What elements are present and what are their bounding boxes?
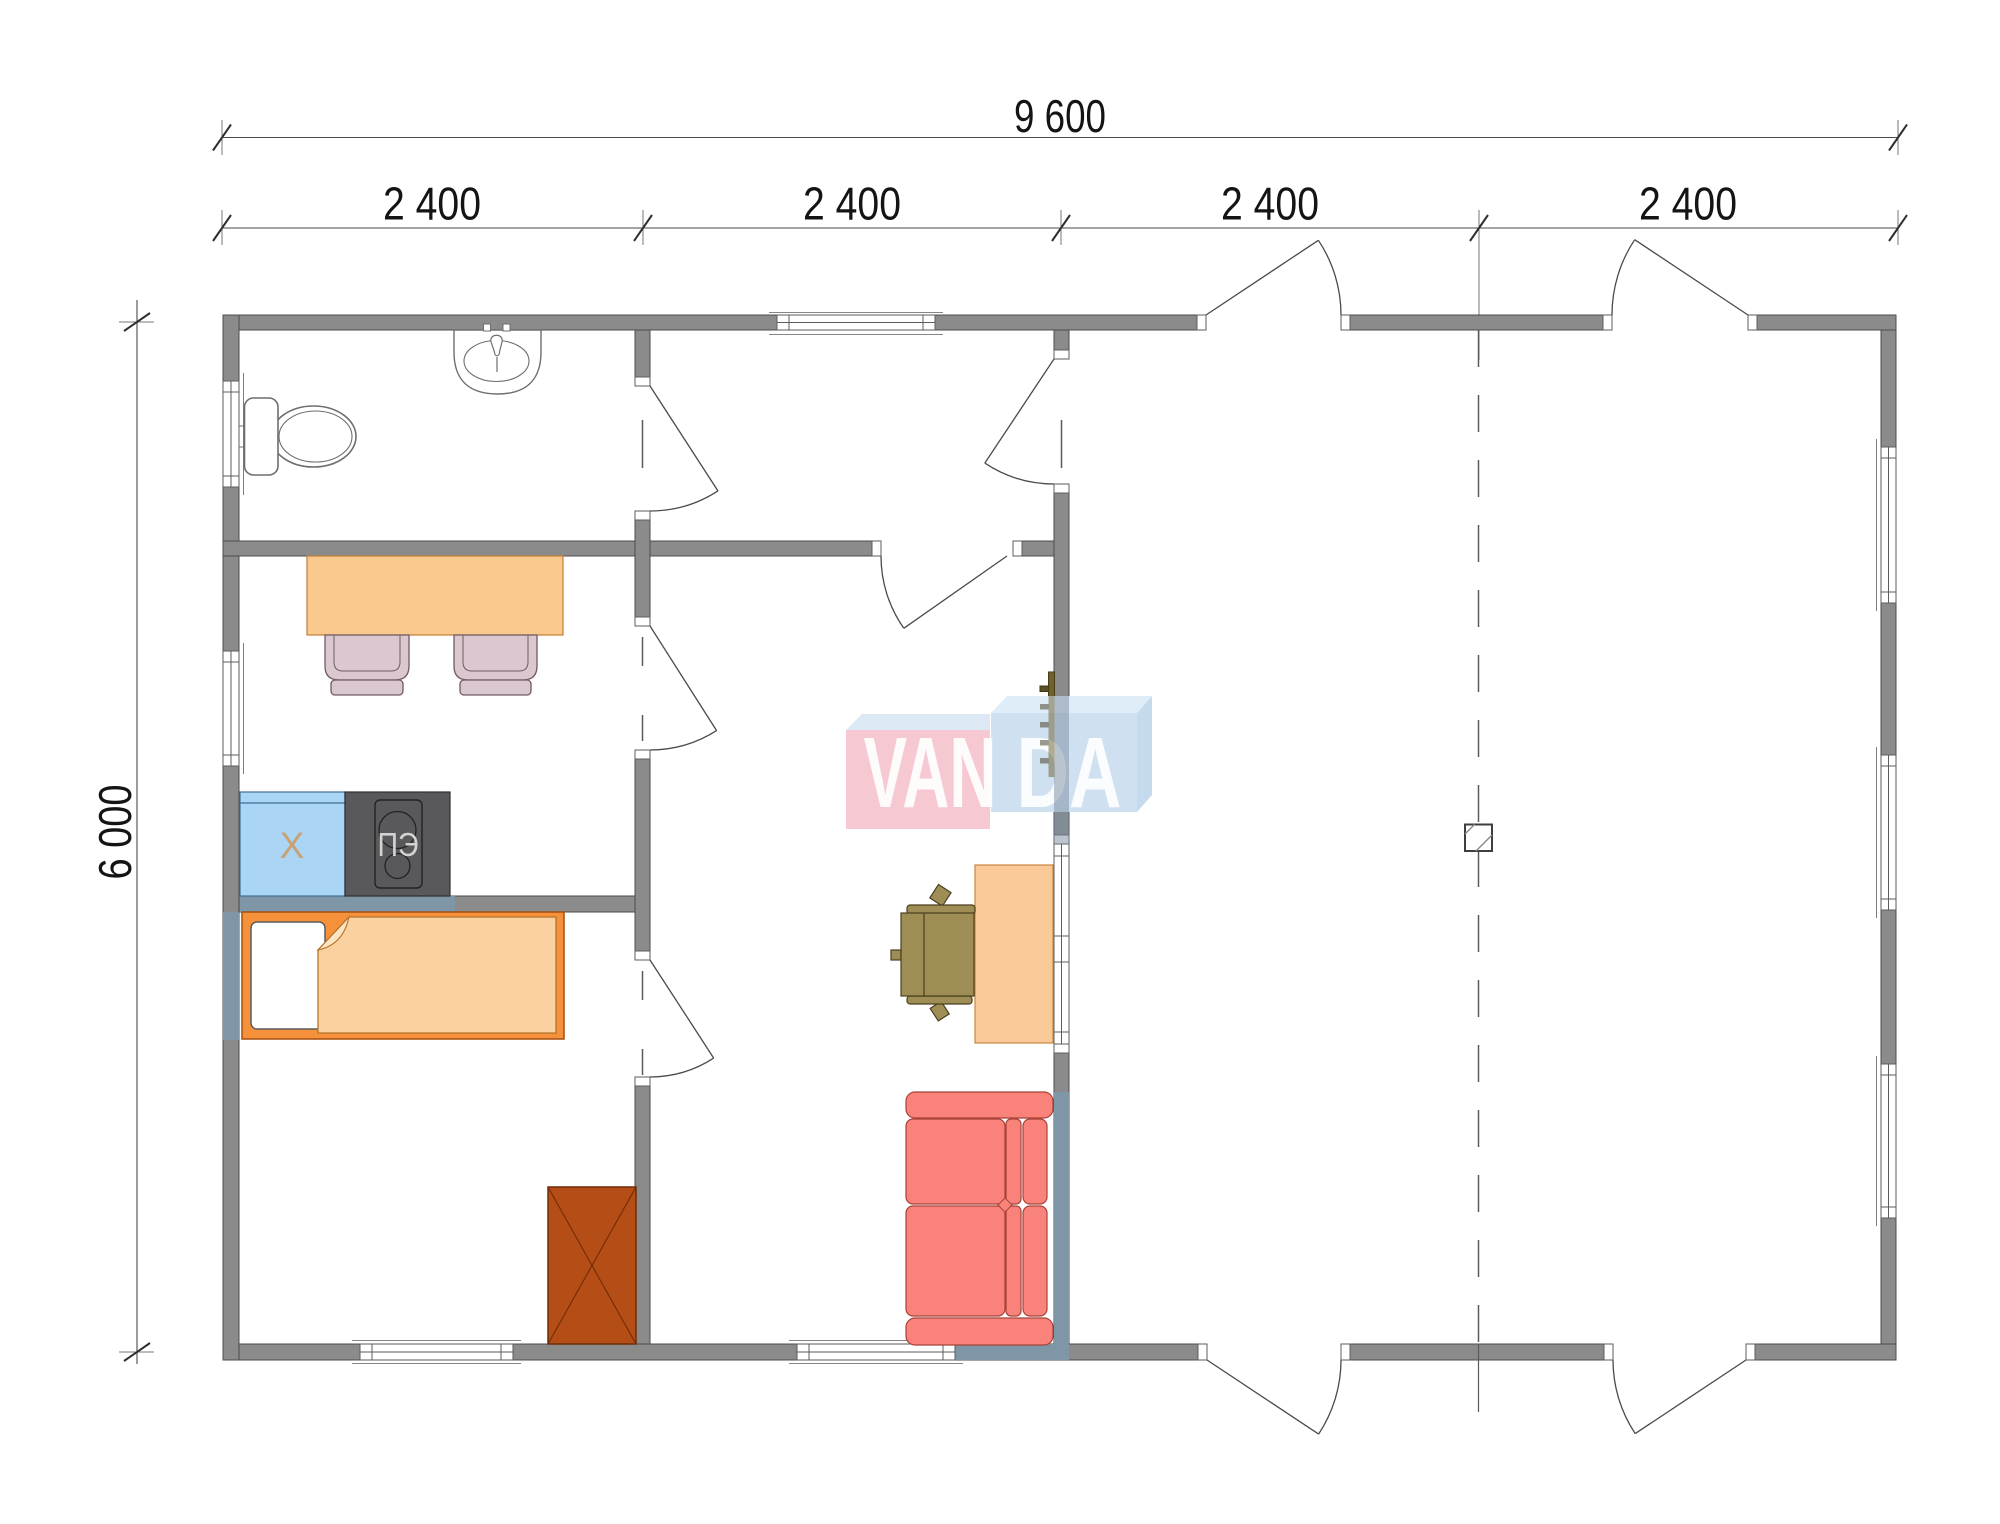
svg-text:6 000: 6 000 [89,785,141,880]
svg-text:2 400: 2 400 [383,178,481,230]
svg-text:2 400: 2 400 [1639,178,1737,230]
svg-text:VAN: VAN [864,717,997,829]
svg-text:ПЭ: ПЭ [378,826,419,863]
svg-text:X: X [280,825,305,866]
svg-text:2 400: 2 400 [803,178,901,230]
svg-text:9 600: 9 600 [1014,90,1106,142]
svg-text:2 400: 2 400 [1221,178,1319,230]
